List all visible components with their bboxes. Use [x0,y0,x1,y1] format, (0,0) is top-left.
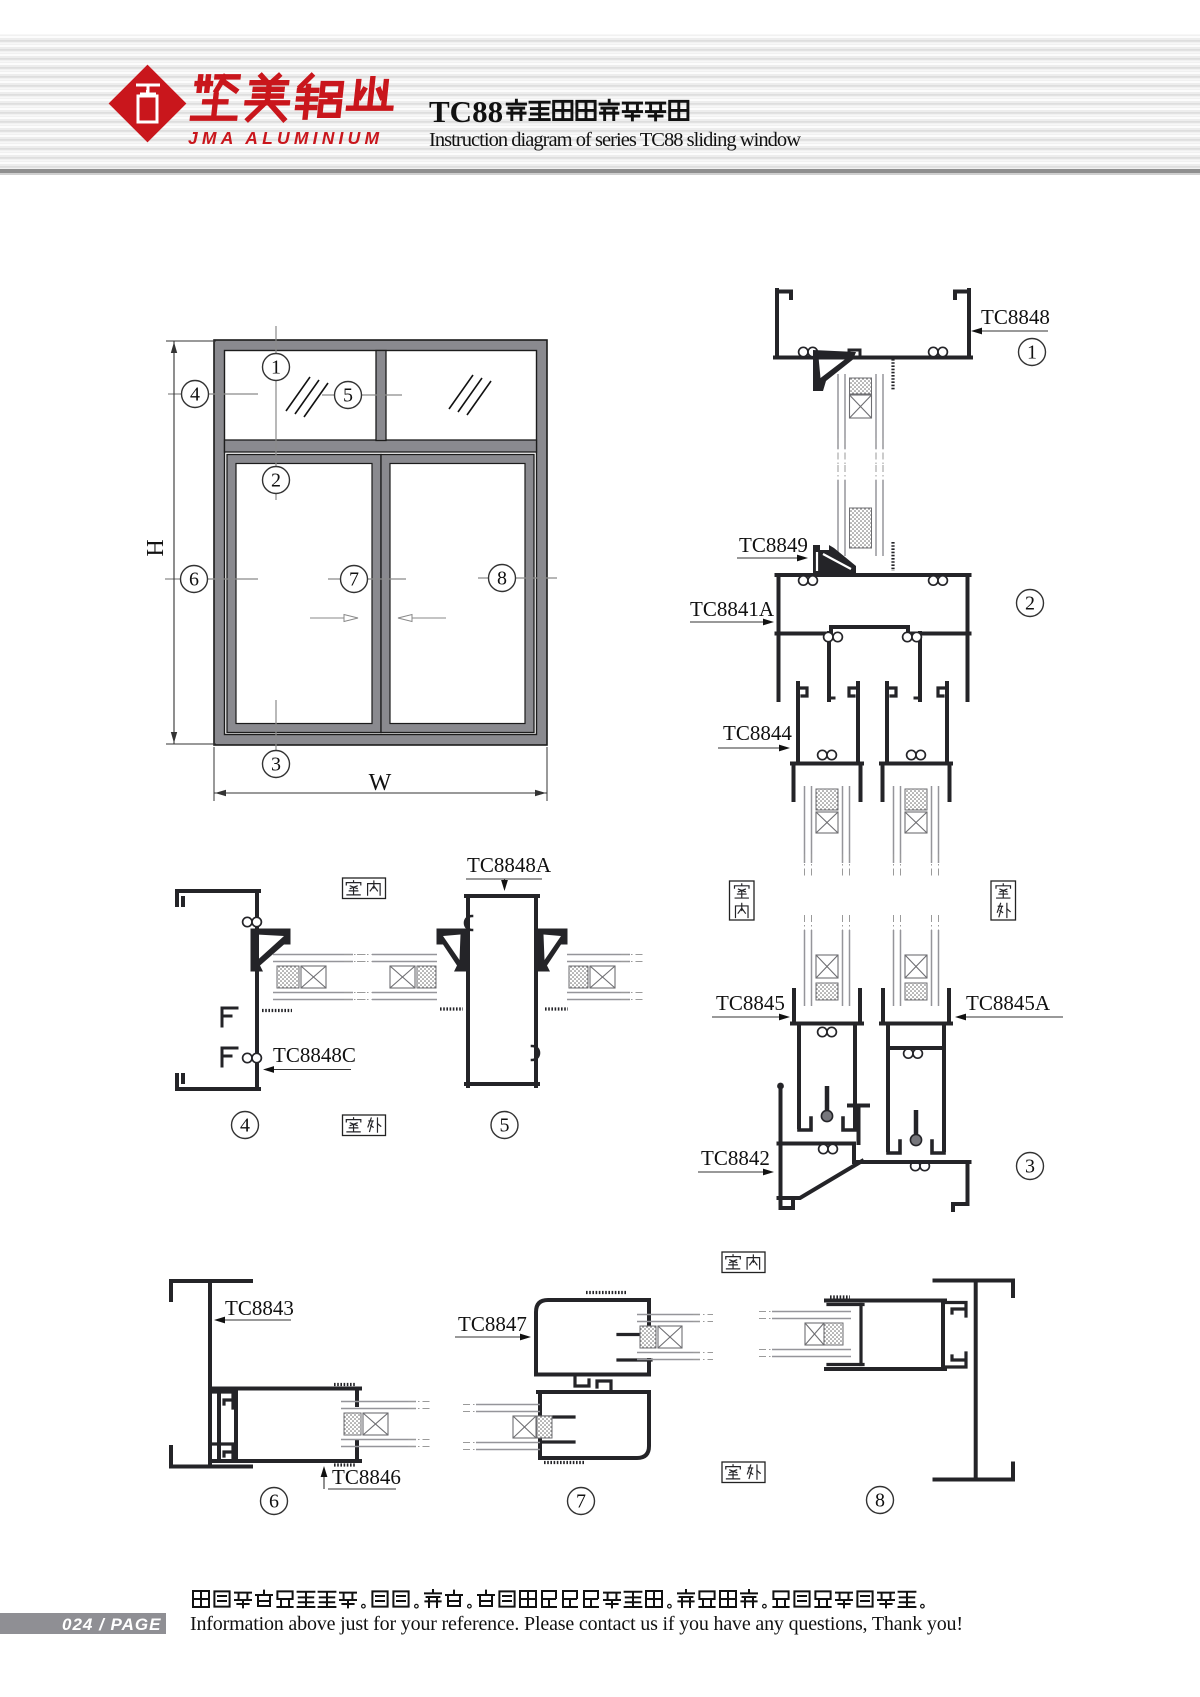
svg-text:8: 8 [497,568,507,590]
svg-text:7: 7 [349,569,359,591]
svg-text:8: 8 [875,1490,885,1512]
svg-text:2: 2 [271,470,281,492]
svg-text:Information above just for you: Information above just for your referenc… [190,1613,963,1635]
svg-text:1: 1 [271,357,281,379]
svg-text:TC8848C: TC8848C [273,1043,356,1067]
svg-text:TC8849: TC8849 [739,533,808,557]
svg-text:6: 6 [189,569,199,591]
svg-text:4: 4 [190,384,200,406]
svg-text:H: H [143,539,169,556]
svg-text:2: 2 [1025,593,1035,615]
svg-text:TC8844: TC8844 [723,721,792,745]
svg-text:TC8845A: TC8845A [966,991,1051,1015]
svg-text:TC8848A: TC8848A [467,853,552,877]
svg-text:TC8843: TC8843 [225,1296,294,1320]
svg-text:TC8842: TC8842 [701,1146,770,1170]
svg-text:TC88: TC88 [429,94,503,129]
svg-text:1: 1 [1027,342,1037,364]
svg-text:5: 5 [500,1115,510,1137]
svg-text:JMA ALUMINIUM: JMA ALUMINIUM [188,128,383,148]
svg-text:W: W [369,770,392,796]
svg-text:TC8847: TC8847 [458,1312,527,1336]
svg-text:5: 5 [343,385,353,407]
svg-text:TC8848: TC8848 [981,305,1050,329]
svg-text:TC8845: TC8845 [716,991,785,1015]
svg-text:7: 7 [576,1491,586,1513]
svg-text:TC8846: TC8846 [332,1465,401,1489]
svg-text:6: 6 [269,1491,279,1513]
svg-text:Instruction diagram of series: Instruction diagram of series TC88 slidi… [429,129,801,151]
svg-text:4: 4 [240,1115,250,1137]
svg-text:TC8841A: TC8841A [690,597,775,621]
svg-text:024 / PAGE: 024 / PAGE [62,1615,161,1634]
svg-text:3: 3 [271,754,281,776]
svg-text:3: 3 [1025,1156,1035,1178]
